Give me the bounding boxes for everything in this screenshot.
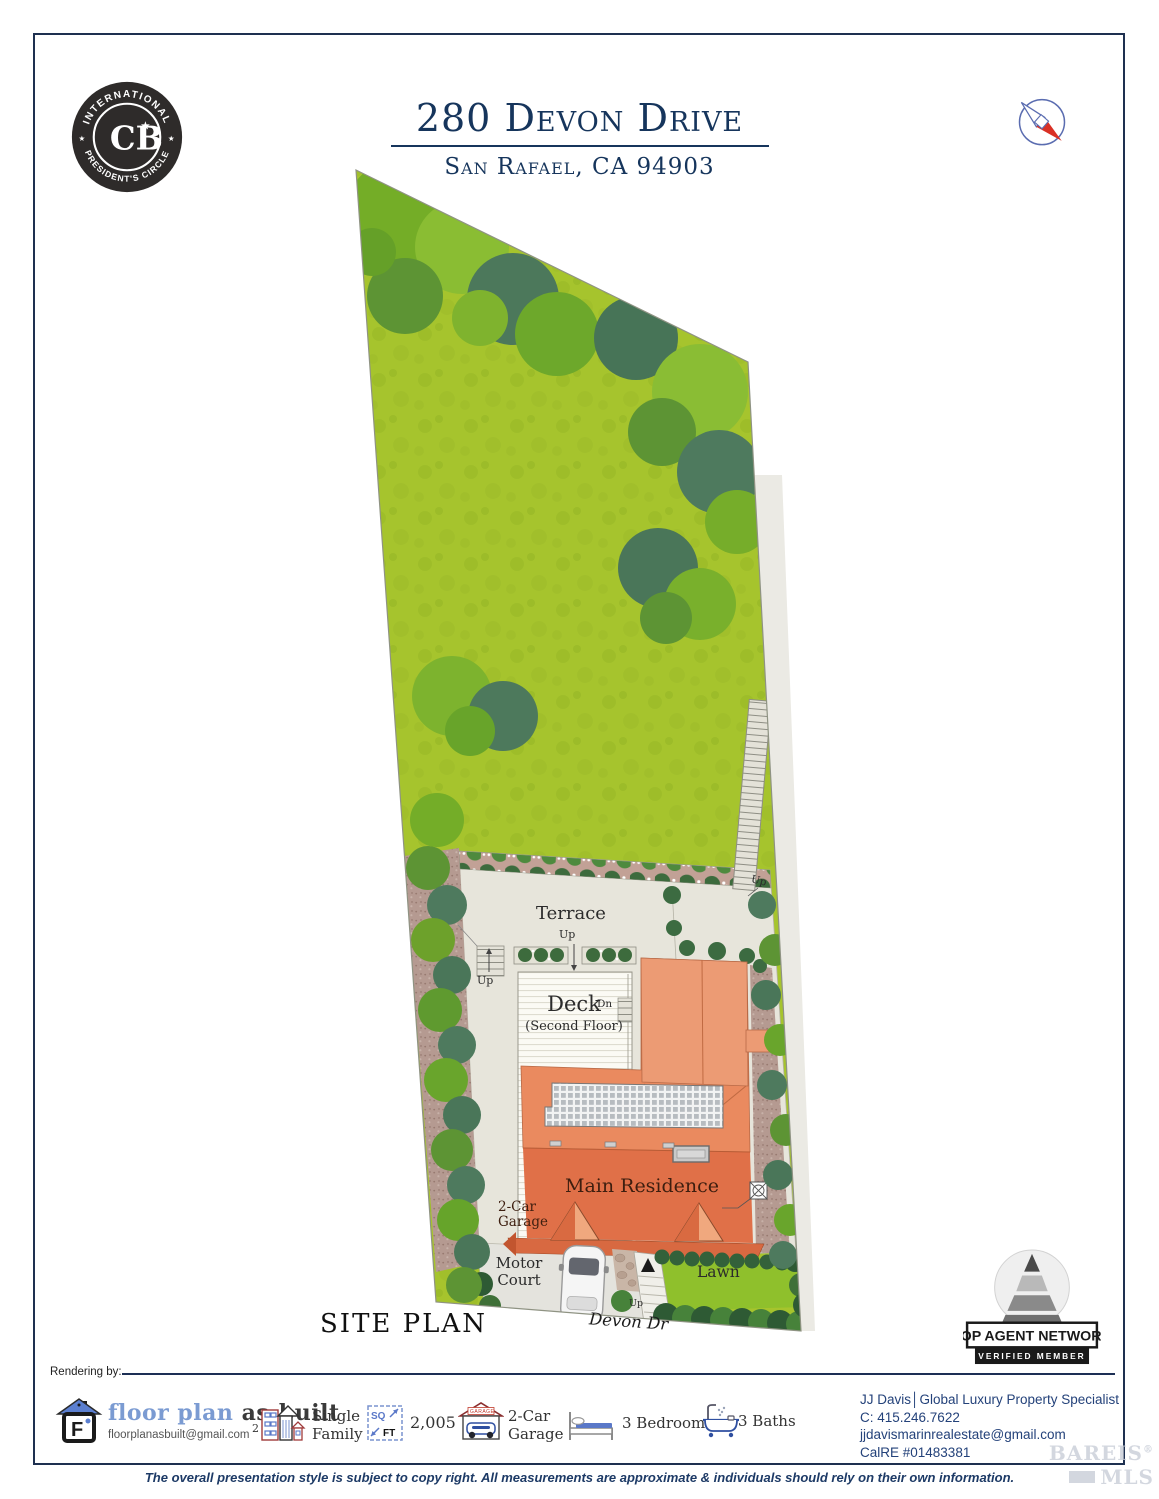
header-title-block: 280 Devon Drive San Rafael, CA 94903: [0, 96, 1159, 180]
solar-panels: [545, 1083, 723, 1128]
single-family-icon: [260, 1402, 306, 1446]
footer-divider-line: [122, 1373, 1115, 1375]
compass-icon: [1012, 94, 1072, 154]
tan-subtitle: VERIFIED MEMBER: [978, 1351, 1085, 1361]
agent-phone: C: 415.246.7622: [860, 1409, 1119, 1427]
label-deck: Deck: [518, 992, 630, 1016]
garage-icon: GARAGE: [458, 1400, 504, 1442]
square-feet-icon: SQ FT: [366, 1404, 404, 1442]
page-subtitle: San Rafael, CA 94903: [0, 154, 1159, 180]
top-agent-network-logo: TOP AGENT NETWORK VERIFIED MEMBER: [963, 1248, 1101, 1366]
label-deck-sub: (Second Floor): [508, 1019, 640, 1034]
plan-caption: SITE PLAN: [320, 1309, 487, 1339]
label-terrace: Terrace: [536, 903, 606, 924]
label-main-residence: Main Residence: [565, 1175, 715, 1197]
garage-label: 2-Car Garage: [508, 1407, 564, 1443]
label-dn: Dn: [597, 998, 612, 1010]
vendor-brand-blue: floor plan: [108, 1400, 233, 1426]
stories-count: 2: [252, 1422, 259, 1435]
sqft-value: 2,005: [410, 1414, 456, 1432]
terrace-steps-left: [477, 946, 504, 976]
tan-title: TOP AGENT NETWORK: [963, 1328, 1101, 1344]
label-garage: 2-Car Garage: [498, 1200, 548, 1230]
registered-mark: ®: [1143, 1444, 1154, 1455]
label-up-driveway: Up: [629, 1298, 643, 1309]
label-motor-court: Motor Court: [494, 1255, 544, 1289]
watermark-mls: MLS: [1100, 1465, 1154, 1489]
bath-icon: [700, 1402, 742, 1442]
disclaimer-text: The overall presentation style is subjec…: [0, 1470, 1159, 1485]
label-up-left: Up: [477, 974, 493, 987]
sqft-icon-top-text: SQ: [371, 1411, 386, 1422]
baths-label: 3 Baths: [738, 1412, 796, 1430]
svg-text:F: F: [71, 1419, 83, 1441]
agent-name-title: JJ Davis│Global Luxury Property Speciali…: [860, 1391, 1119, 1409]
label-lawn: Lawn: [697, 1263, 740, 1281]
garage-icon-text: GARAGE: [470, 1409, 495, 1415]
rendering-by-label: Rendering by:: [50, 1366, 122, 1378]
floor-plan-as-built-logo-icon: F: [55, 1396, 103, 1444]
bed-icon: [566, 1410, 616, 1444]
bareis-mls-watermark: BAREIS® MLS: [1048, 1441, 1154, 1489]
page-title: 280 Devon Drive: [0, 96, 1159, 140]
watermark-name: BAREIS: [1049, 1441, 1143, 1465]
watermark-bar: [1069, 1471, 1095, 1483]
sqft-icon-bottom-text: FT: [383, 1428, 395, 1439]
single-family-label: Single Family: [312, 1407, 363, 1443]
label-up-deck: Up: [559, 928, 575, 941]
title-divider: [391, 145, 769, 147]
